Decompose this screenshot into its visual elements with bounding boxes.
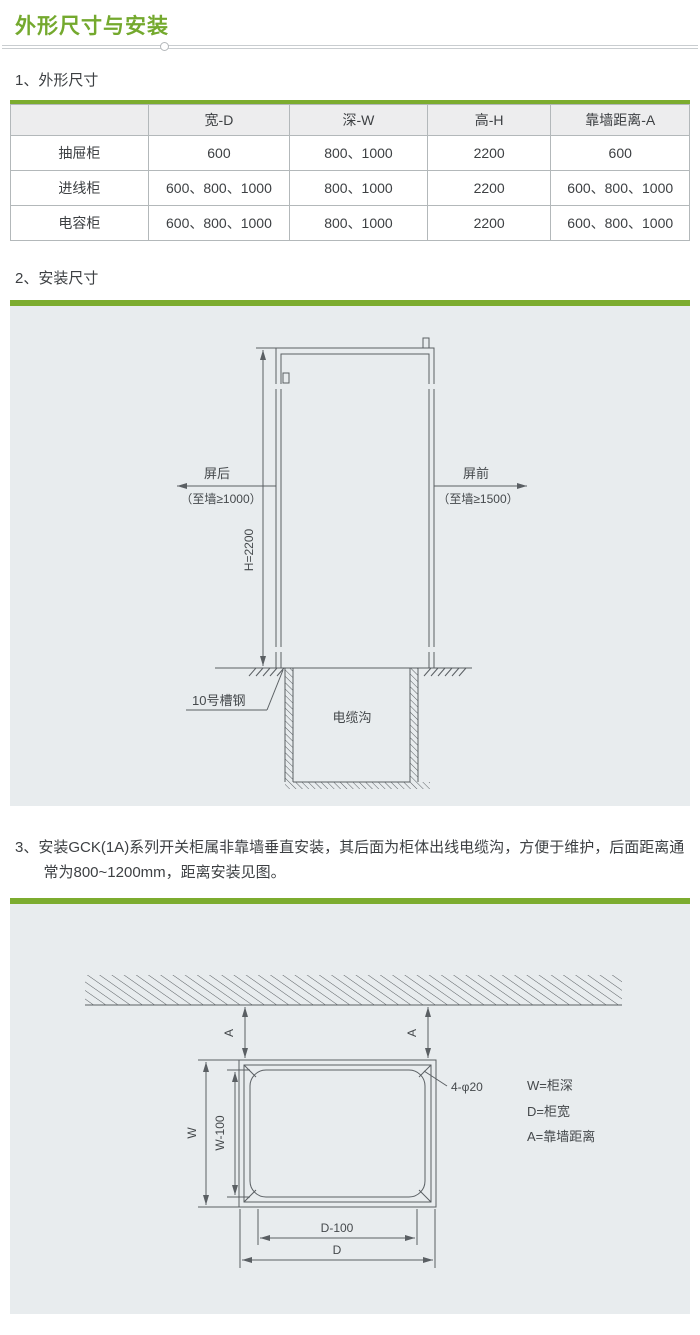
cabinet-side-view [274, 338, 436, 668]
table-cell: 800、1000 [290, 171, 428, 206]
wall-dist-left-label: A [222, 1028, 236, 1036]
channel-steel-callout: 10号槽钢 [186, 670, 283, 710]
table-cell: 抽屉柜 [11, 136, 149, 171]
front-clearance: 屏前 （至墙≥1500） [434, 466, 527, 506]
cable-trench-label: 电缆沟 [332, 710, 371, 725]
table-row: 电容柜 600、800、1000 800、1000 2200 600、800、1… [11, 206, 690, 241]
section-2-heading: 2、安装尺寸 [15, 267, 700, 288]
holes-label: 4-φ20 [451, 1080, 483, 1094]
installation-top-panel: A A W W-100 [10, 898, 690, 1314]
cable-trench: 电缆沟 [285, 668, 430, 789]
front-label: 屏前 [463, 466, 489, 481]
table-header-cell: 宽-D [148, 105, 289, 136]
table-cell: 2200 [427, 206, 551, 241]
depth-dim-label: W [185, 1126, 199, 1138]
rear-clearance: 屏后 （至墙≥1000） [177, 466, 276, 506]
holes-callout: 4-φ20 [424, 1071, 483, 1094]
height-dimension: H=2200 [242, 348, 276, 666]
cabinet-top-view [239, 1060, 436, 1207]
legend-width: D=柜宽 [527, 1104, 570, 1119]
table-cell: 进线柜 [11, 171, 149, 206]
table-cell: 2200 [427, 136, 551, 171]
dimensions-table: 宽-D 深-W 高-H 靠墙距离-A 抽屉柜 600 800、1000 2200… [10, 104, 690, 241]
width-inner-dim-label: D-100 [321, 1221, 354, 1235]
width-dim-label: D [333, 1243, 342, 1257]
depth-dimension: W [185, 1060, 239, 1207]
table-header-cell [11, 105, 149, 136]
table-cell: 600 [551, 136, 690, 171]
title-rule [0, 45, 700, 53]
diagram-legend: W=柜深 D=柜宽 A=靠墙距离 [527, 1078, 595, 1144]
table-header-cell: 靠墙距离-A [551, 105, 690, 136]
height-dim-label: H=2200 [242, 528, 256, 571]
table-cell: 800、1000 [290, 136, 428, 171]
lifting-lug [423, 338, 429, 348]
installation-top-diagram: A A W W-100 [10, 904, 690, 1314]
section-1-heading: 1、外形尺寸 [15, 69, 700, 90]
front-note: （至墙≥1500） [437, 492, 518, 506]
legend-depth: W=柜深 [527, 1078, 573, 1093]
installation-side-diagram: H=2200 屏后 （至墙≥1000） 屏前 （至墙≥1500） [10, 306, 690, 806]
installation-side-panel: H=2200 屏后 （至墙≥1000） 屏前 （至墙≥1500） [10, 300, 690, 806]
table-header-row: 宽-D 深-W 高-H 靠墙距离-A [11, 105, 690, 136]
rule-circle-ornament [160, 42, 169, 51]
table-cell: 600、800、1000 [148, 171, 289, 206]
width-inner-dimension: D-100 [260, 1221, 415, 1238]
channel-steel-label: 10号槽钢 [192, 693, 245, 708]
table-row: 抽屉柜 600 800、1000 2200 600 [11, 136, 690, 171]
table-cell: 600 [148, 136, 289, 171]
door-handle [283, 373, 289, 383]
table-cell: 600、800、1000 [551, 206, 690, 241]
depth-inner-dim-label: W-100 [213, 1115, 227, 1150]
table-cell: 800、1000 [290, 206, 428, 241]
table-cell: 600、800、1000 [551, 171, 690, 206]
dimensions-table-wrap: 宽-D 深-W 高-H 靠墙距离-A 抽屉柜 600 800、1000 2200… [10, 100, 690, 241]
table-cell: 电容柜 [11, 206, 149, 241]
section-3-paragraph: 3、安装GCK(1A)系列开关柜属非靠墙垂直安装，其后面为柜体出线电缆沟，方便于… [15, 836, 685, 886]
table-header-cell: 深-W [290, 105, 428, 136]
ground-line [215, 668, 472, 676]
page-header: 外形尺寸与安装 [0, 0, 700, 40]
rear-label: 屏后 [204, 466, 230, 481]
rear-note: （至墙≥1000） [180, 492, 261, 506]
table-cell: 600、800、1000 [148, 206, 289, 241]
legend-wall-distance: A=靠墙距离 [527, 1129, 595, 1144]
wall-distance-left: A [222, 1007, 245, 1058]
wall-distance-right: A [405, 1007, 428, 1058]
page-title: 外形尺寸与安装 [15, 10, 700, 40]
table-header-cell: 高-H [427, 105, 551, 136]
wall-hatch [85, 975, 622, 1005]
table-row: 进线柜 600、800、1000 800、1000 2200 600、800、1… [11, 171, 690, 206]
table-cell: 2200 [427, 171, 551, 206]
width-dimension: D [242, 1243, 433, 1260]
wall-dist-right-label: A [405, 1028, 419, 1036]
